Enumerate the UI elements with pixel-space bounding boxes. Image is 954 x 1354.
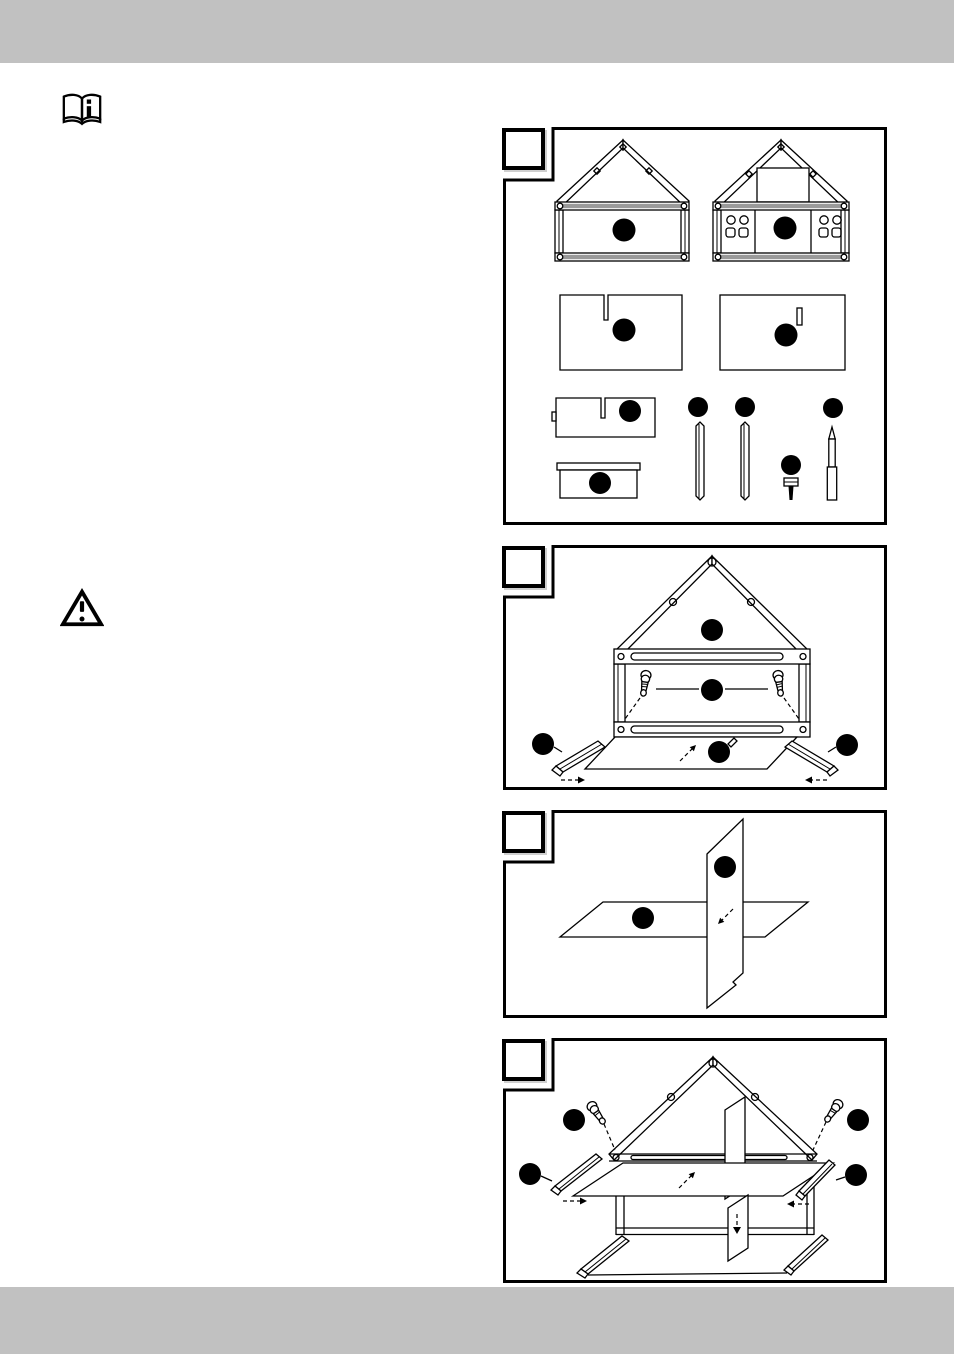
callout-dot	[714, 856, 736, 878]
callout-dot	[774, 217, 797, 240]
manual-page	[0, 0, 954, 1354]
step-number-box	[502, 1039, 545, 1081]
callout-dot	[836, 734, 858, 756]
info-dot	[87, 99, 91, 103]
step-number-box	[502, 811, 545, 853]
callout-dot	[701, 679, 723, 701]
callout-dot	[563, 1109, 585, 1131]
step-number-box	[502, 546, 545, 588]
callout-dot	[688, 397, 708, 417]
step-3-illustration	[503, 810, 887, 1018]
warning-icon	[60, 587, 104, 629]
step-panel-4	[503, 1038, 887, 1283]
callout-dot	[532, 733, 554, 755]
info-stem	[87, 106, 91, 117]
callout-dot	[519, 1163, 541, 1185]
part-panel-short-slot	[720, 295, 845, 370]
callout-dot	[847, 1109, 869, 1131]
footer-bar	[0, 1287, 954, 1354]
step-4-illustration	[503, 1038, 887, 1283]
callout-dot	[613, 219, 636, 242]
step-number-box	[502, 128, 545, 170]
callout-dot	[613, 319, 636, 342]
header-bar	[0, 0, 954, 63]
callout-dot	[735, 397, 755, 417]
callout-dot	[781, 455, 801, 475]
horizontal-panel	[560, 902, 808, 937]
callout-dot	[589, 472, 611, 494]
callout-dot	[632, 907, 654, 929]
base-panel	[585, 737, 797, 769]
part-panel-long-slot	[560, 295, 682, 370]
callout-dot	[708, 741, 730, 763]
read-manual-icon	[60, 92, 104, 128]
step-panel-2	[503, 545, 887, 790]
callout-dot	[845, 1164, 867, 1186]
step-panel-3	[503, 810, 887, 1018]
callout-dot	[823, 398, 843, 418]
step-panel-1	[503, 127, 887, 525]
step-2-illustration	[503, 545, 887, 790]
callout-dot	[775, 324, 798, 347]
callout-dot	[619, 400, 641, 422]
step-1-illustration	[503, 127, 887, 525]
callout-dot	[701, 619, 723, 641]
part-base-tray	[557, 463, 640, 498]
